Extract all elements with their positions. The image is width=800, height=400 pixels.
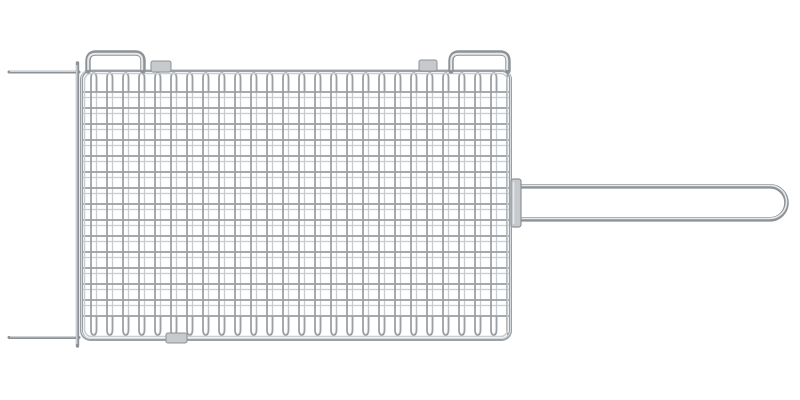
latch-loop-left xyxy=(88,53,143,71)
latch-clip-bottom xyxy=(166,333,187,343)
grill-basket-photo xyxy=(0,0,800,400)
handle-collar xyxy=(511,179,521,227)
handle xyxy=(511,179,787,227)
latch-loop-right xyxy=(451,53,508,71)
latch-clip-top-left xyxy=(151,61,171,72)
product-photo-canvas xyxy=(0,0,800,400)
mesh-grid xyxy=(83,70,509,338)
left-support-rod xyxy=(77,63,78,346)
latch-clip-top-right xyxy=(419,60,437,71)
top-left-prong xyxy=(9,71,79,72)
bottom-left-prong xyxy=(9,337,79,338)
